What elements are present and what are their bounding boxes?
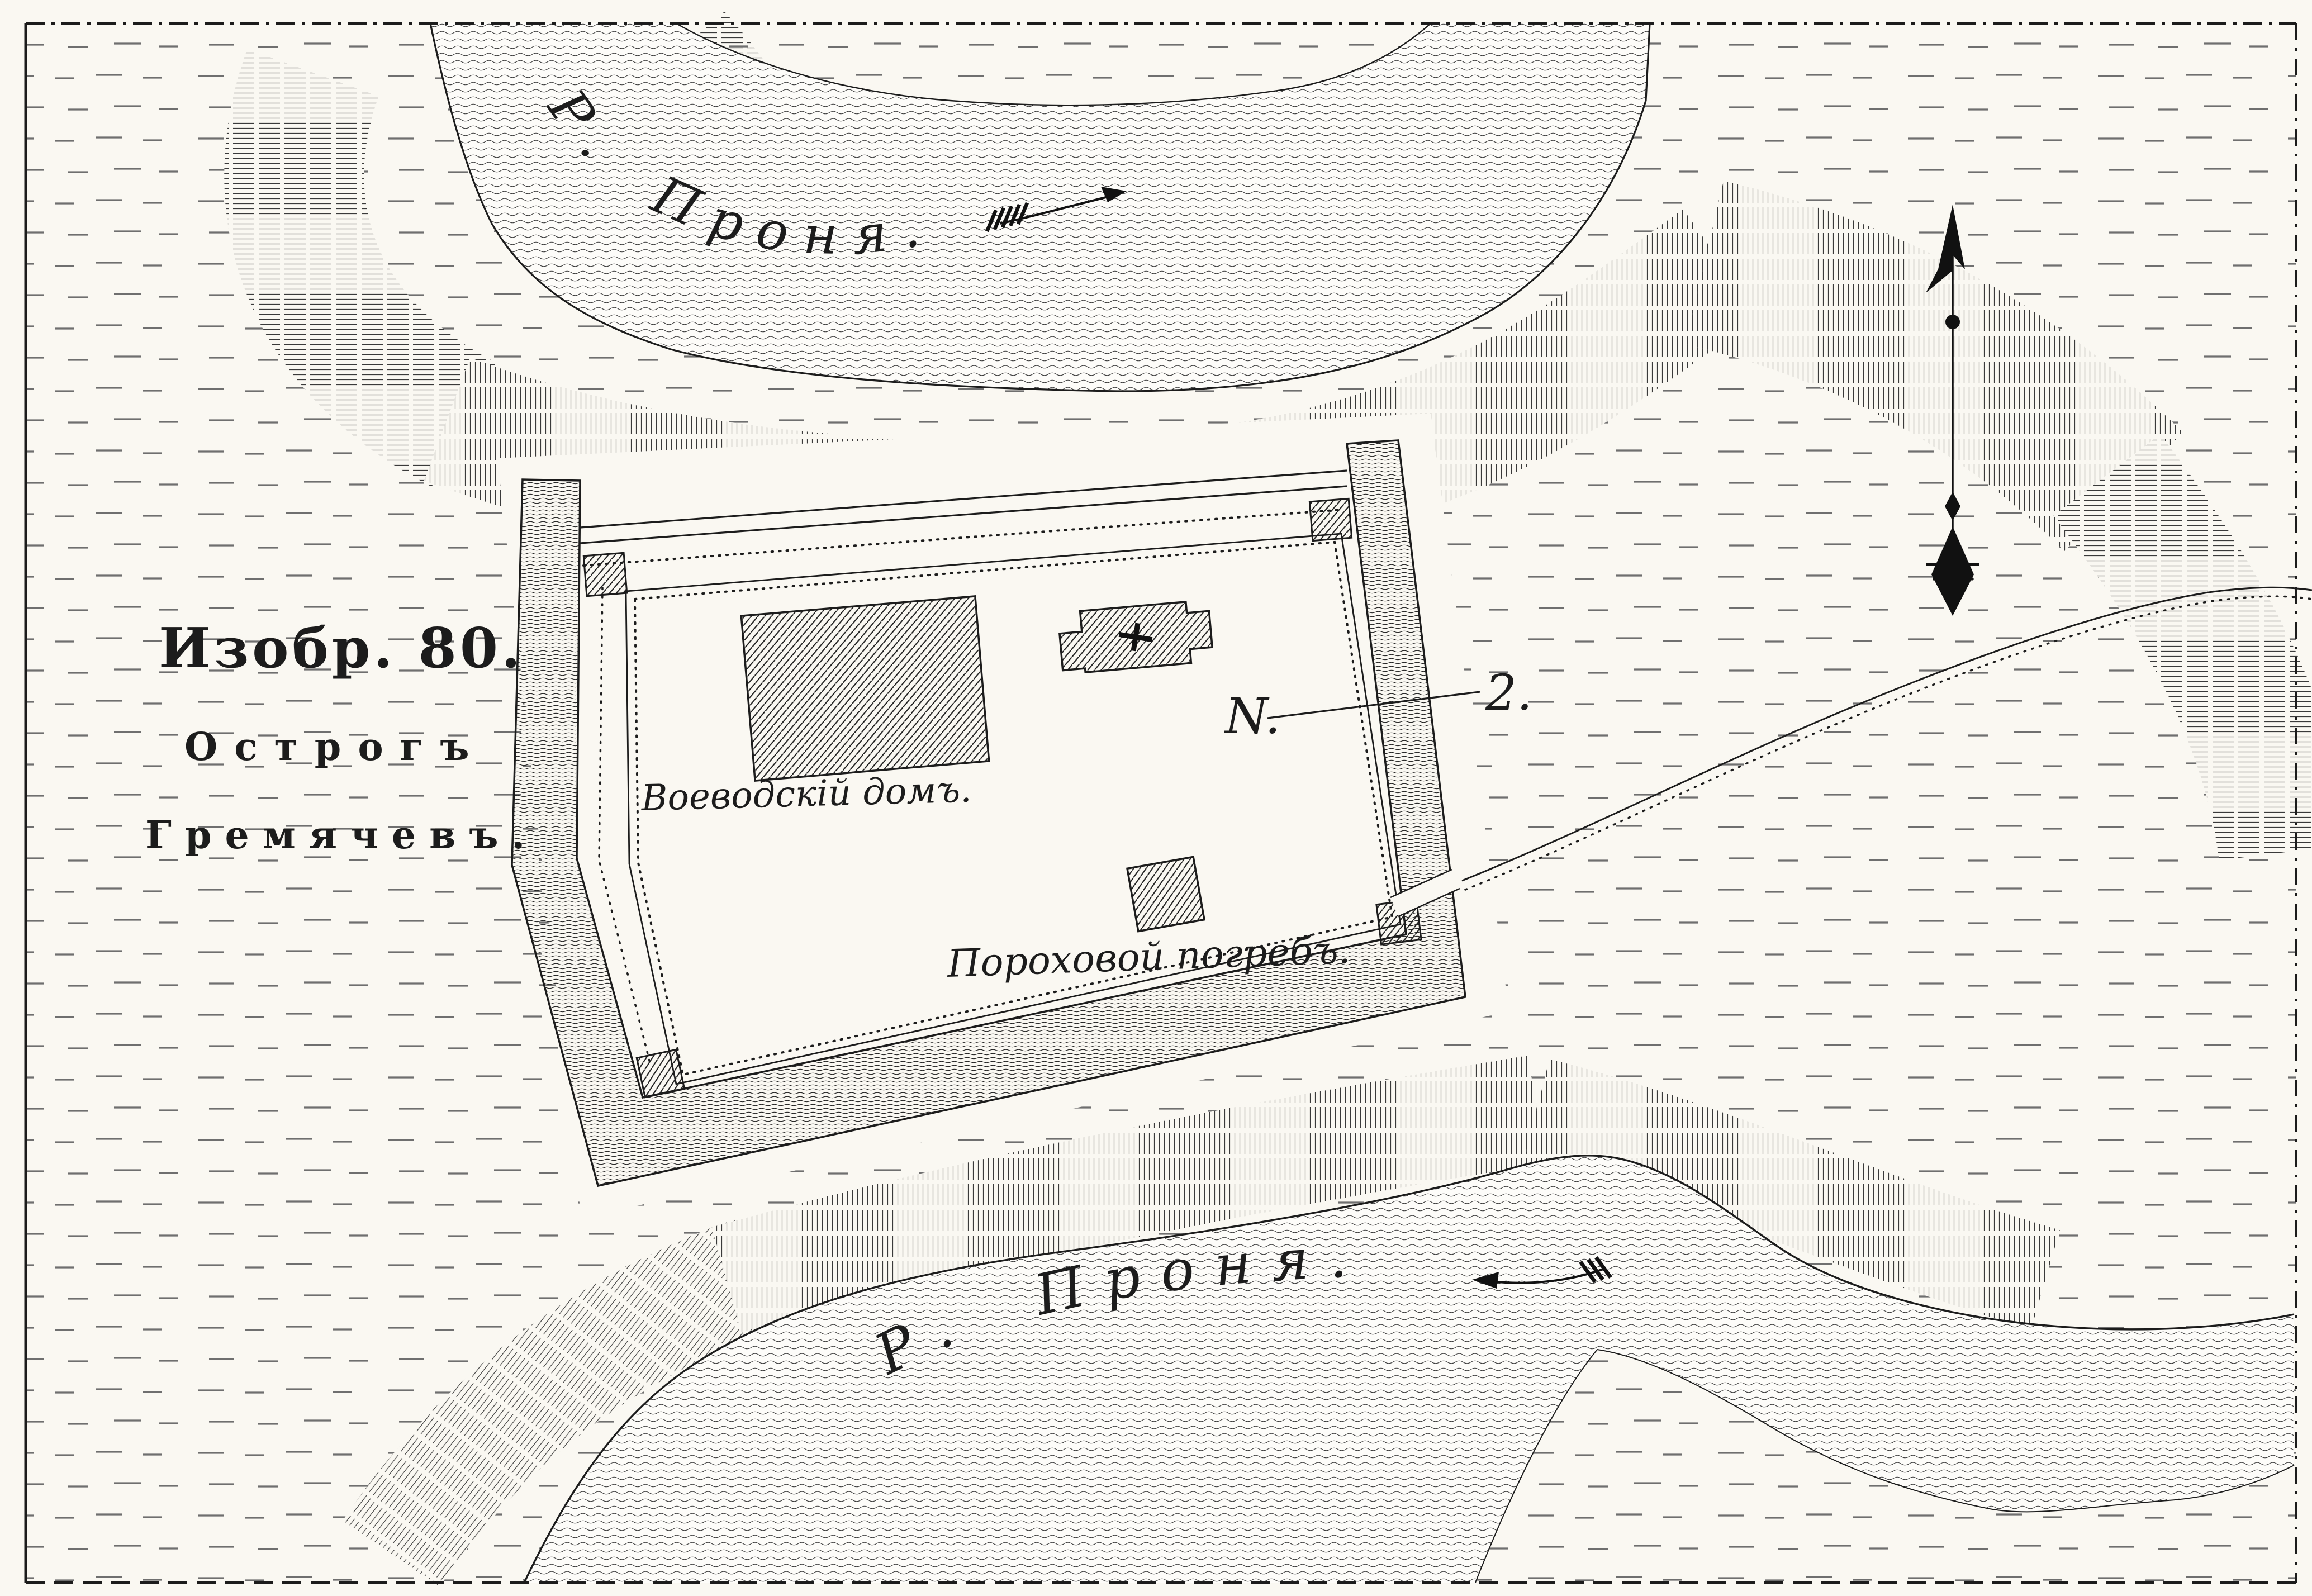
label-voivode-house: Воеводскій домъ. xyxy=(640,769,972,819)
figure-title-line1: Острогъ xyxy=(184,725,486,769)
voivode-house xyxy=(741,596,989,781)
figure-number: Изобр. 80. xyxy=(159,616,524,681)
callout-number-label: 2. xyxy=(1485,664,1532,721)
powder-cellar xyxy=(1127,857,1204,931)
map-canvas: N. 2. Воеводскій домъ. Пороховой погребъ… xyxy=(0,0,2312,1596)
engraved-map-page: N. 2. Воеводскій домъ. Пороховой погребъ… xyxy=(0,0,2312,1596)
corner-tower-nw xyxy=(583,553,626,596)
corner-tower-ne xyxy=(1309,498,1351,540)
callout-n-label: N. xyxy=(1224,687,1280,745)
figure-title-line2: Гремячевъ. xyxy=(145,813,538,858)
corner-tower-sw xyxy=(637,1049,684,1097)
figure-title: Изобр. 80. Острогъ Гремячевъ. xyxy=(145,616,538,858)
compass-knob xyxy=(1945,315,1960,329)
